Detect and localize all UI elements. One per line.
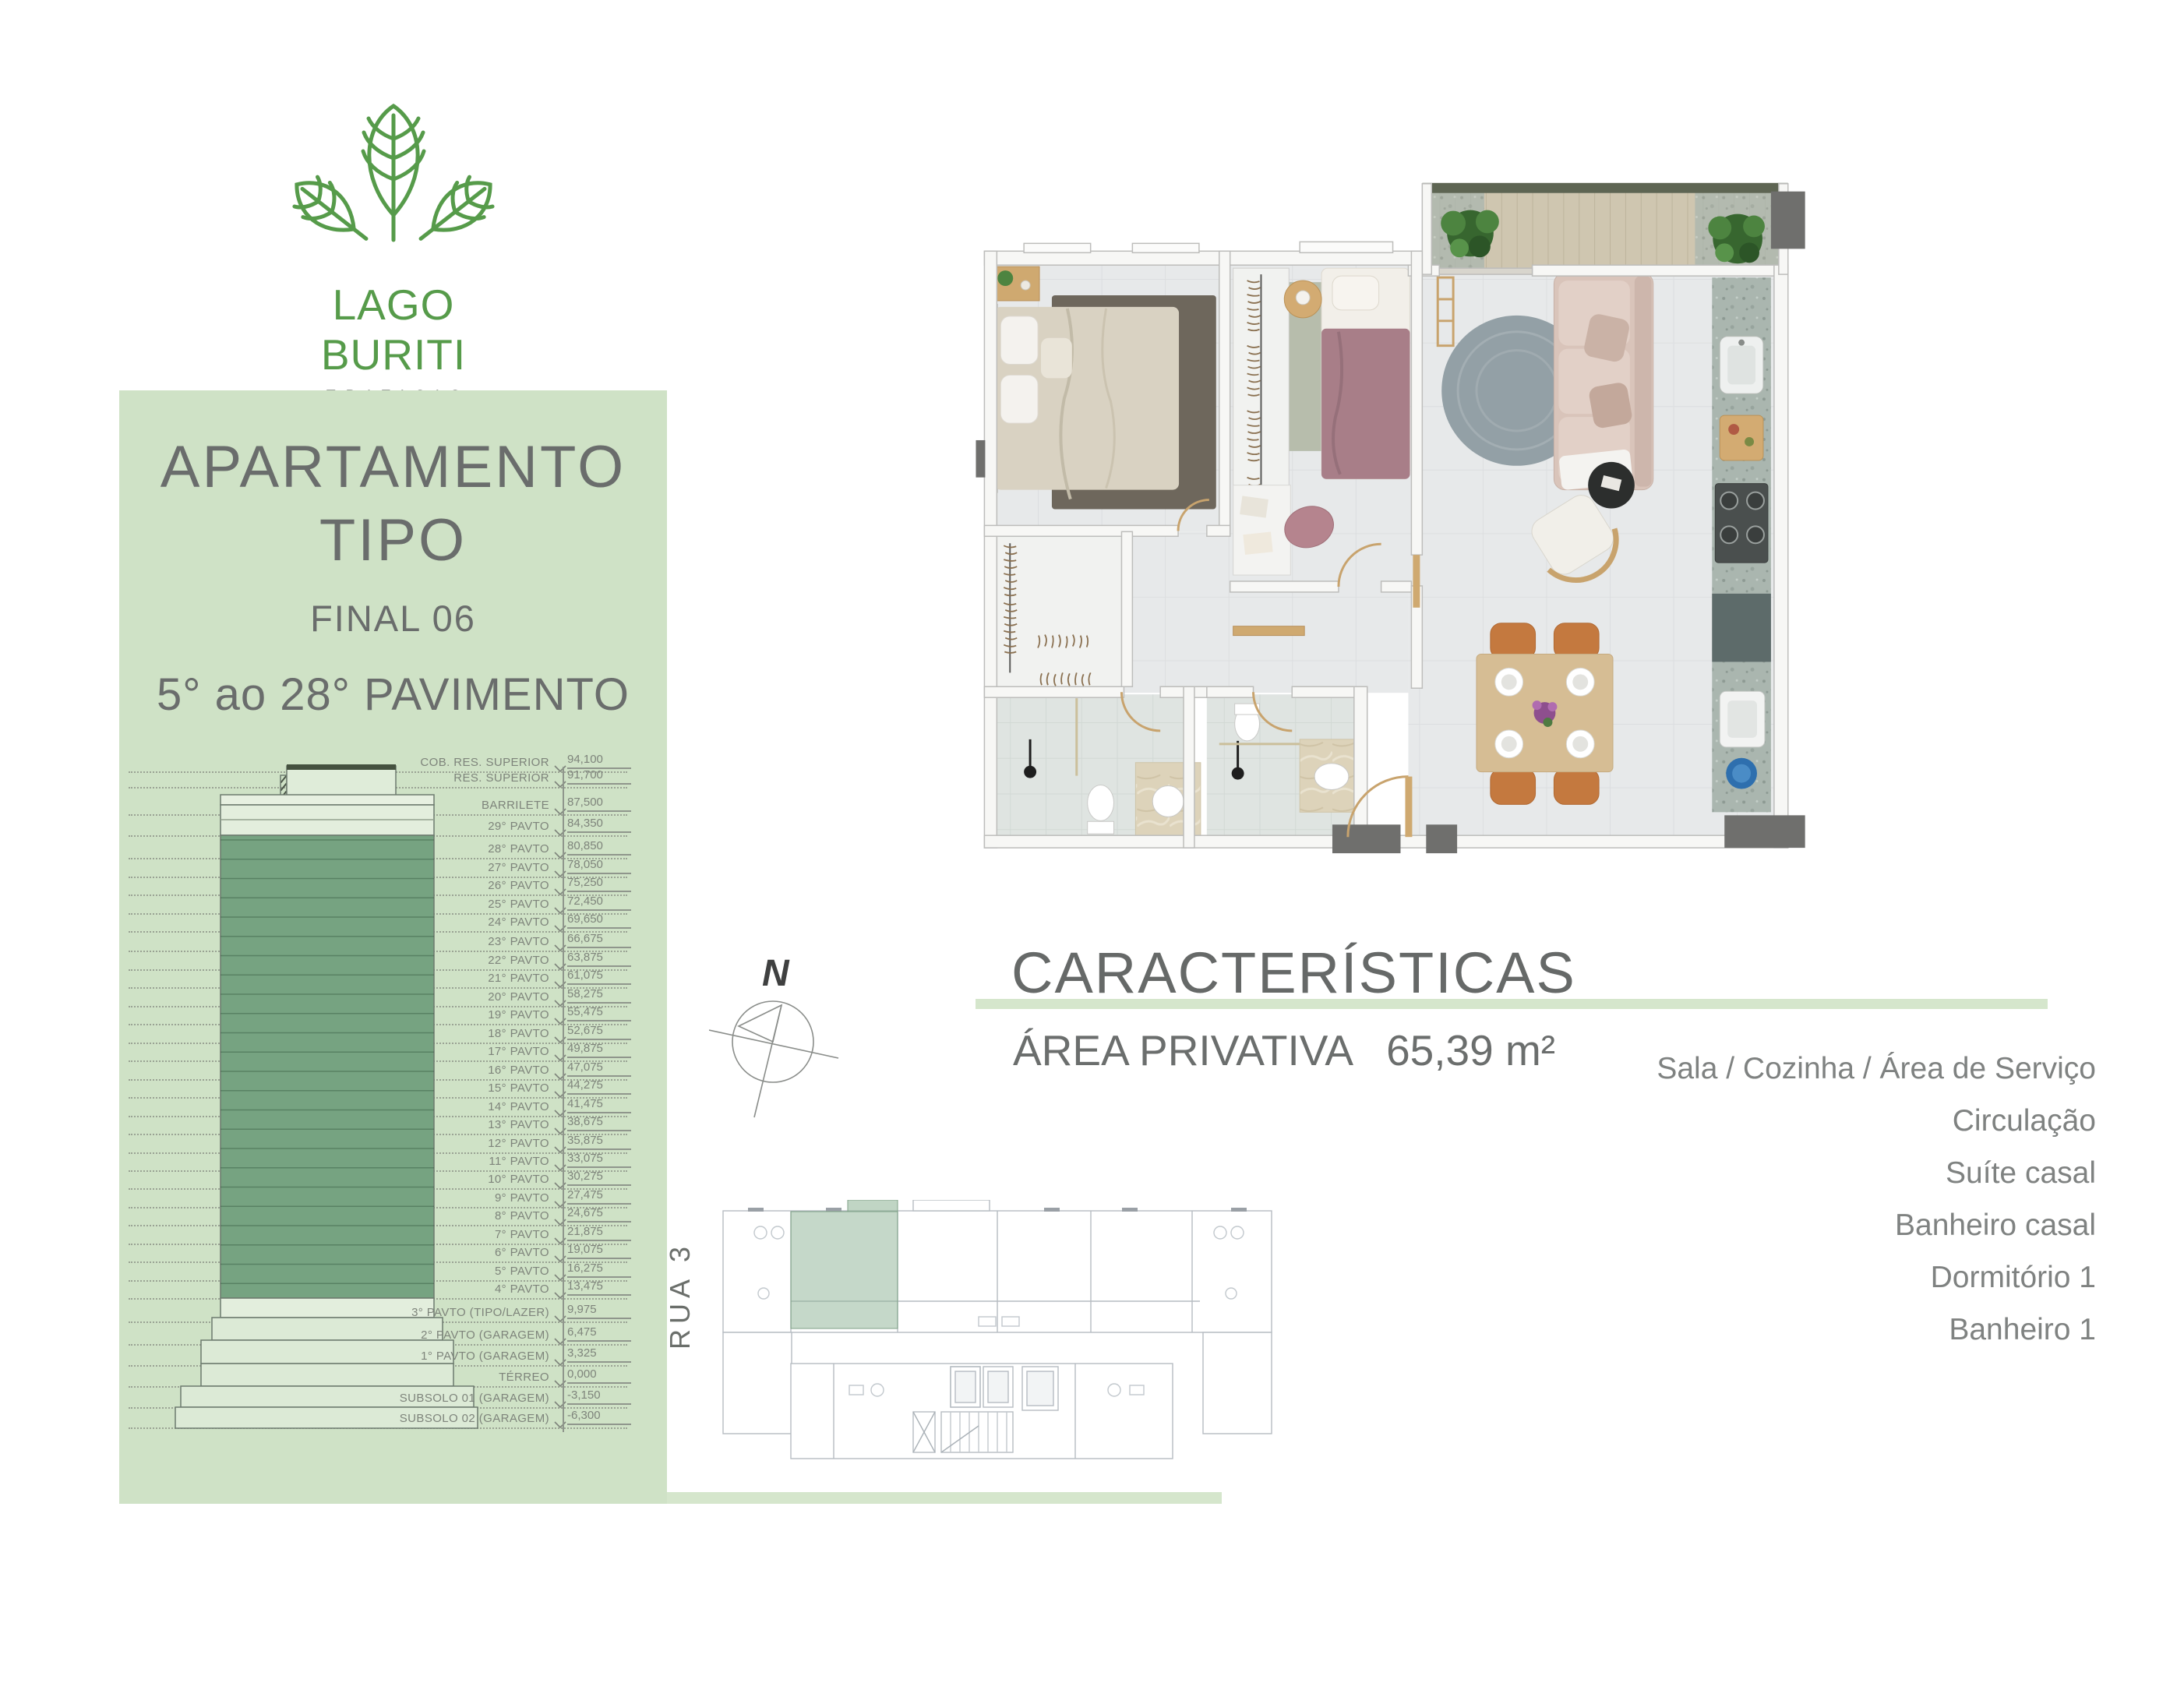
level-marker-icon xyxy=(554,781,566,789)
level-marker-icon xyxy=(554,852,566,859)
stove xyxy=(1715,484,1768,563)
level-marker-icon xyxy=(554,1401,566,1409)
elevation-level-value: 24,675 xyxy=(567,1206,631,1223)
panel-title-line1: APARTAMENTO xyxy=(119,433,667,501)
level-marker-icon xyxy=(554,1237,566,1245)
elevation-level-value: 75,250 xyxy=(567,876,631,892)
elevation-floor-label: 23° PAVTO xyxy=(234,935,549,948)
elevation-floor-label: 7° PAVTO xyxy=(234,1228,549,1241)
elevation-level-value: 19,075 xyxy=(567,1243,631,1259)
elevation-floor-label: 14° PAVTO xyxy=(234,1100,549,1113)
level-marker-icon xyxy=(554,808,566,816)
compass-icon xyxy=(709,983,841,1124)
level-marker-icon xyxy=(554,944,566,952)
apartment-floorplan-render xyxy=(974,152,1827,865)
rooms-list: Sala / Cozinha / Área de Serviço Circula… xyxy=(1657,1043,2096,1356)
elevation-floor-label: RES. SUPERIOR xyxy=(234,771,549,785)
nightstand xyxy=(991,266,1039,301)
elevation-floor-label: SUBSOLO 02 (GARAGEM) xyxy=(234,1412,549,1425)
elevation-floor-label: 20° PAVTO xyxy=(234,990,549,1004)
level-marker-icon xyxy=(554,963,566,971)
plant-icon xyxy=(1708,214,1765,264)
area-value: 65,39 m² xyxy=(1386,1026,1555,1074)
level-marker-icon xyxy=(554,1073,566,1081)
leaf-logo-icon xyxy=(265,92,522,271)
elevation-level-value: 66,675 xyxy=(567,932,631,948)
pillow xyxy=(1041,338,1072,379)
room-item: Banheiro 1 xyxy=(1657,1304,2096,1356)
elevation-floor-label: 22° PAVTO xyxy=(234,954,549,967)
pillow xyxy=(1000,316,1038,365)
elevation-floor-label: COB. RES. SUPERIOR xyxy=(234,756,549,769)
elevation-floor-label: TÉRREO xyxy=(234,1371,549,1384)
elevation-level-value: 38,675 xyxy=(567,1115,631,1131)
characteristics-title: CARACTERÍSTICAS xyxy=(1011,940,1576,1006)
shaft-block xyxy=(976,440,985,478)
bottom-accent-band xyxy=(667,1492,1222,1504)
dining-chair xyxy=(1491,623,1536,659)
elevation-level-value: 61,075 xyxy=(567,969,631,985)
level-marker-icon xyxy=(554,1201,566,1208)
shaft-block xyxy=(1771,192,1805,249)
panel-title-line2: TIPO xyxy=(119,506,667,574)
level-marker-icon xyxy=(554,829,566,837)
elevation-level-value: 3,325 xyxy=(567,1346,631,1363)
floor-plate-keyplan xyxy=(717,1200,1278,1461)
elevation-floor-label: 3° PAVTO (TIPO/LAZER) xyxy=(234,1306,549,1319)
room-item: Dormitório 1 xyxy=(1657,1251,2096,1304)
characteristics-underline xyxy=(976,999,2048,1009)
elevation-level-value: 80,850 xyxy=(567,839,631,856)
street-label: RUA 3 xyxy=(664,1241,697,1350)
brand-name: LAGO BURITI xyxy=(265,280,522,379)
elevation-floor-label: 19° PAVTO xyxy=(234,1008,549,1021)
elevation-level-value: 0,000 xyxy=(567,1367,631,1384)
elevation-floor-label: 2° PAVTO (GARAGEM) xyxy=(234,1328,549,1342)
elevation-level-value: 55,475 xyxy=(567,1005,631,1021)
elevation-floor-label: 27° PAVTO xyxy=(234,861,549,874)
elevation-level-value: 91,700 xyxy=(567,768,631,785)
elevation-level-value: 87,500 xyxy=(567,796,631,812)
elevation-level-value: -3,150 xyxy=(567,1388,631,1405)
elevation-floor-label: 16° PAVTO xyxy=(234,1064,549,1077)
level-marker-icon xyxy=(554,1380,566,1388)
elevation-floor-label: 24° PAVTO xyxy=(234,916,549,929)
level-marker-icon xyxy=(554,1127,566,1135)
toilet xyxy=(1088,785,1114,821)
highlighted-unit-06 xyxy=(791,1200,898,1328)
level-marker-icon xyxy=(554,1255,566,1263)
elevation-level-value: 49,875 xyxy=(567,1042,631,1058)
shaft-block xyxy=(1724,815,1805,848)
logo: LAGO BURITI EDIFICIO xyxy=(265,92,522,406)
level-marker-icon xyxy=(554,870,566,878)
level-marker-icon xyxy=(554,1036,566,1044)
level-marker-icon xyxy=(554,1110,566,1117)
elevation-level-value: 94,100 xyxy=(567,753,631,769)
shaft-block xyxy=(1426,824,1457,853)
elevation-dimension-line xyxy=(563,767,564,1432)
elevation-level-value: 44,275 xyxy=(567,1078,631,1095)
level-marker-icon xyxy=(554,1091,566,1099)
elevation-floor-label: 6° PAVTO xyxy=(234,1246,549,1259)
panel-final-number: FINAL 06 xyxy=(119,597,667,640)
vanity-sink xyxy=(1152,786,1184,817)
elevation-floor-label: 15° PAVTO xyxy=(234,1081,549,1095)
elevation-floor-label: 29° PAVTO xyxy=(234,820,549,833)
elevation-floor-label: 21° PAVTO xyxy=(234,972,549,985)
elevation-floor-label: 26° PAVTO xyxy=(234,879,549,892)
elevation-floor-label: 13° PAVTO xyxy=(234,1118,549,1131)
level-marker-icon xyxy=(554,1182,566,1190)
elevation-level-value: 52,675 xyxy=(567,1024,631,1040)
room-item: Suíte casal xyxy=(1657,1147,2096,1199)
level-marker-icon xyxy=(554,1054,566,1062)
elevation-floor-label: 11° PAVTO xyxy=(234,1155,549,1168)
level-marker-icon xyxy=(554,1018,566,1025)
elevation-level-value: 30,275 xyxy=(567,1170,631,1186)
balcony-rail xyxy=(1422,183,1787,193)
sofa xyxy=(1554,273,1653,490)
elevation-floor-label: BARRILETE xyxy=(234,799,549,812)
elevation-level-value: 9,975 xyxy=(567,1303,631,1319)
elevation-level-value: 35,875 xyxy=(567,1134,631,1150)
level-marker-icon xyxy=(554,1000,566,1007)
level-marker-icon xyxy=(554,1359,566,1367)
level-marker-icon xyxy=(554,765,566,773)
dining-chair xyxy=(1554,623,1599,659)
dining-chair xyxy=(1554,769,1599,805)
plant-icon xyxy=(997,270,1013,286)
door-leaf xyxy=(1413,555,1420,608)
elevation-floor-label: 17° PAVTO xyxy=(234,1045,549,1058)
elevation-floor-label: 4° PAVTO xyxy=(234,1283,549,1296)
elevation-level-value: 69,650 xyxy=(567,912,631,929)
area-label: ÁREA PRIVATIVA xyxy=(1013,1026,1353,1074)
elevation-level-value: 84,350 xyxy=(567,817,631,833)
kitchen xyxy=(1712,277,1771,812)
elevation-floor-label: 12° PAVTO xyxy=(234,1137,549,1150)
elevation-level-value: 41,475 xyxy=(567,1097,631,1113)
corridor-shelf xyxy=(1233,626,1305,636)
cutting-board xyxy=(1720,415,1763,460)
level-marker-icon xyxy=(554,1338,566,1346)
room-item: Banheiro casal xyxy=(1657,1199,2096,1251)
elevation-level-value: 78,050 xyxy=(567,858,631,874)
room-item: Sala / Cozinha / Área de Serviço xyxy=(1657,1043,2096,1095)
elevation-floor-label: 25° PAVTO xyxy=(234,898,549,911)
level-marker-icon xyxy=(554,1421,566,1429)
level-marker-icon xyxy=(554,981,566,989)
elevation-floor-label: 1° PAVTO (GARAGEM) xyxy=(234,1350,549,1363)
private-area-row: ÁREA PRIVATIVA65,39 m² xyxy=(1013,1025,1555,1075)
elevation-level-value: 63,875 xyxy=(567,951,631,967)
elevation-level-value: 27,475 xyxy=(567,1188,631,1205)
elevation-level-value: 47,075 xyxy=(567,1060,631,1077)
brochure-page: LAGO BURITI EDIFICIO APARTAMENTO TIPO FI… xyxy=(0,0,2184,1683)
room-item: Circulação xyxy=(1657,1095,2096,1147)
level-marker-icon xyxy=(554,1315,566,1323)
dining-chair xyxy=(1491,769,1536,805)
vanity-sink xyxy=(1314,764,1349,790)
elevation-floor-label: 9° PAVTO xyxy=(234,1191,549,1205)
elevation-level-value: 21,875 xyxy=(567,1225,631,1241)
elevation-floor-label: 8° PAVTO xyxy=(234,1209,549,1223)
elevation-level-value: 33,075 xyxy=(567,1152,631,1168)
level-marker-icon xyxy=(554,907,566,915)
elevation-level-value: 58,275 xyxy=(567,987,631,1004)
door-leaf xyxy=(1405,777,1412,838)
pillow xyxy=(1000,375,1038,423)
shaft-block xyxy=(1332,824,1401,853)
elevation-floor-label: 28° PAVTO xyxy=(234,842,549,856)
level-marker-icon xyxy=(554,925,566,933)
elevation-level-value: -6,300 xyxy=(567,1409,631,1425)
elevation-level-value: 13,475 xyxy=(567,1279,631,1296)
elevation-floor-label: 5° PAVTO xyxy=(234,1265,549,1278)
elevation-level-value: 6,475 xyxy=(567,1325,631,1342)
lamp-icon xyxy=(1296,291,1310,305)
elevation-floor-label: 18° PAVTO xyxy=(234,1027,549,1040)
oven-cabinet xyxy=(1712,594,1771,662)
pillow xyxy=(1588,381,1633,429)
elevation-level-value: 16,275 xyxy=(567,1261,631,1278)
level-marker-icon xyxy=(554,1292,566,1300)
level-marker-icon xyxy=(554,888,566,896)
elevation-floor-label: SUBSOLO 01 (GARAGEM) xyxy=(234,1392,549,1405)
level-marker-icon xyxy=(554,1219,566,1226)
elevation-floor-label: 10° PAVTO xyxy=(234,1173,549,1186)
level-marker-icon xyxy=(554,1146,566,1154)
panel-floor-range: 5° ao 28° PAVIMENTO xyxy=(119,669,667,721)
pillow xyxy=(1332,276,1379,310)
elevation-level-value: 72,450 xyxy=(567,894,631,911)
level-marker-icon xyxy=(554,1164,566,1172)
level-marker-icon xyxy=(554,1274,566,1282)
